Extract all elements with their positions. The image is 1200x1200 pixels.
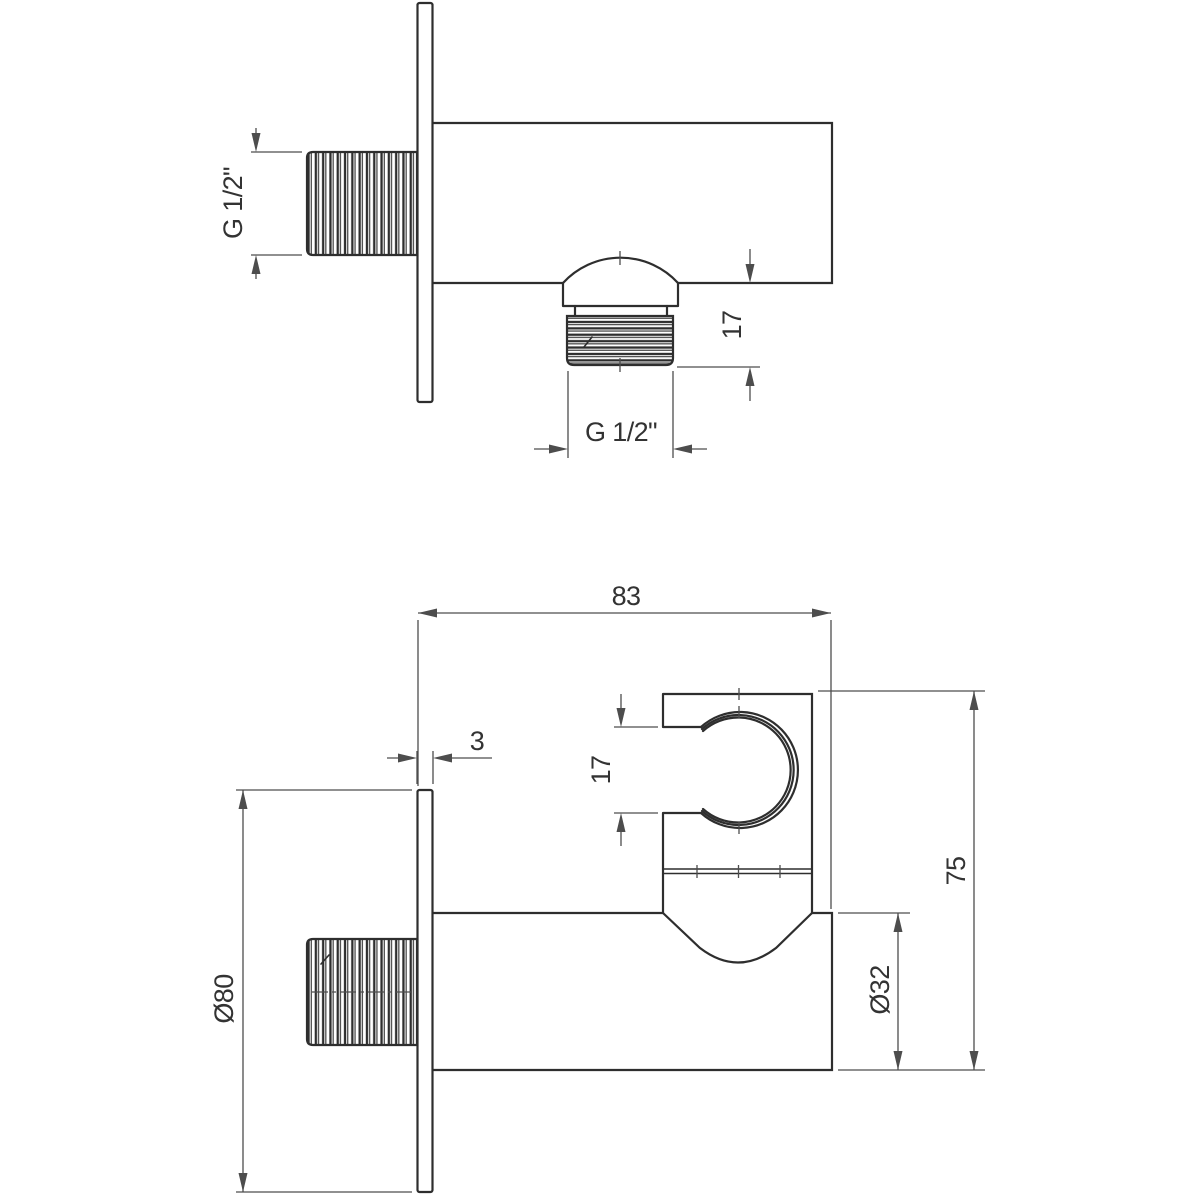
dim-label-outlet-height: 17	[717, 311, 747, 340]
dim-label-body-diameter: Ø32	[865, 965, 895, 1014]
dim-label-overall-height: 75	[941, 857, 971, 886]
outlet-collar	[563, 283, 678, 306]
drawing-canvas: G 1/2" 17 G 1/2" 83 3 17 75 Ø32 Ø80	[0, 0, 1200, 1200]
dim-arrow	[617, 708, 626, 727]
dim-label-plate-diameter: Ø80	[209, 974, 239, 1023]
dim-arrow	[812, 609, 831, 618]
dim-arrow	[252, 255, 261, 274]
outlet-neck	[575, 306, 667, 316]
holder-funnel	[663, 913, 812, 963]
dimension-labels: G 1/2" 17 G 1/2" 83 3 17 75 Ø32 Ø80	[209, 167, 971, 1024]
holder-block	[663, 694, 812, 913]
wall-plate-side	[418, 790, 433, 1192]
dim-label-plate-thickness: 3	[470, 726, 484, 756]
dim-arrow	[894, 913, 903, 932]
dim-label-outlet-thread: G 1/2"	[585, 417, 657, 447]
dim-arrow	[239, 790, 248, 809]
outlet-thread-g12	[567, 316, 673, 365]
holder-ring-arc-middle	[702, 715, 794, 825]
dim-arrow	[617, 813, 626, 832]
dim-arrow	[894, 1051, 903, 1070]
bottom-view	[307, 694, 832, 1192]
holder-ring-arc-inner	[703, 718, 791, 823]
drawing-page: G 1/2" 17 G 1/2" 83 3 17 75 Ø32 Ø80	[0, 0, 1200, 1200]
dim-arrow	[433, 754, 452, 763]
dim-arrow	[746, 367, 755, 386]
dim-arrow	[239, 1173, 248, 1192]
wall-plate-side	[418, 3, 433, 402]
valve-body-outline	[433, 913, 832, 1070]
dim-label-inlet-thread-top: G 1/2"	[218, 167, 248, 239]
holder-joint-band	[663, 869, 812, 874]
dim-arrow	[549, 445, 568, 454]
dim-arrow	[418, 609, 437, 618]
dim-arrow	[970, 691, 979, 710]
inlet-thread-g12	[307, 152, 417, 255]
holder-ring-arc-outer	[701, 712, 798, 828]
dim-extension	[418, 620, 831, 909]
dim-arrow	[746, 264, 755, 283]
dim-extension	[417, 751, 433, 784]
dim-arrow	[398, 754, 417, 763]
object-lines	[307, 3, 832, 1192]
dim-arrow	[970, 1051, 979, 1070]
dim-label-depth: 83	[612, 581, 641, 611]
top-view	[307, 3, 832, 402]
dim-label-holder-opening: 17	[586, 756, 616, 785]
dim-extension	[614, 727, 658, 813]
dim-arrow	[673, 445, 692, 454]
dim-arrow	[252, 133, 261, 152]
dim-extension	[251, 152, 302, 255]
